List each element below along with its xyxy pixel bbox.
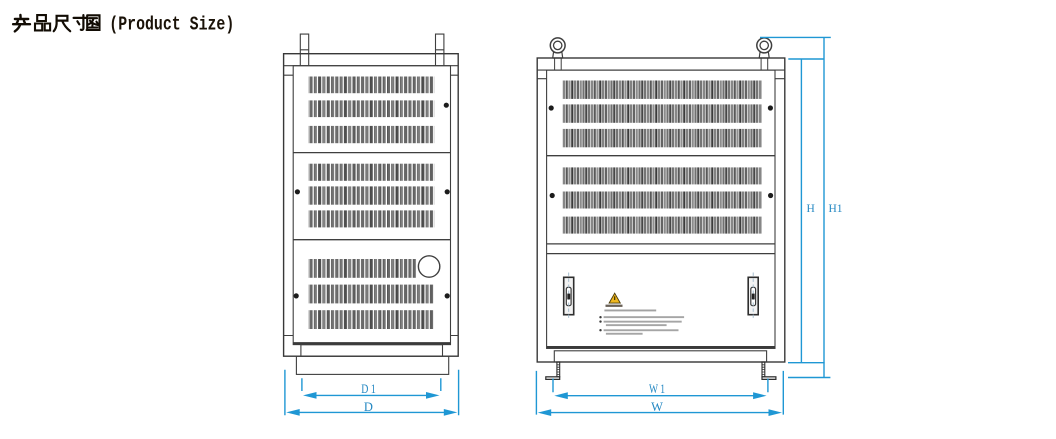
svg-text:W 1: W 1 [649, 382, 665, 396]
svg-text:D: D [364, 400, 373, 414]
svg-text:W: W [651, 400, 663, 414]
svg-text:H1: H1 [829, 203, 843, 215]
svg-text:D 1: D 1 [361, 382, 376, 396]
svg-text:H: H [807, 203, 815, 215]
svg-text:(Product Size): (Product Size) [109, 13, 234, 35]
